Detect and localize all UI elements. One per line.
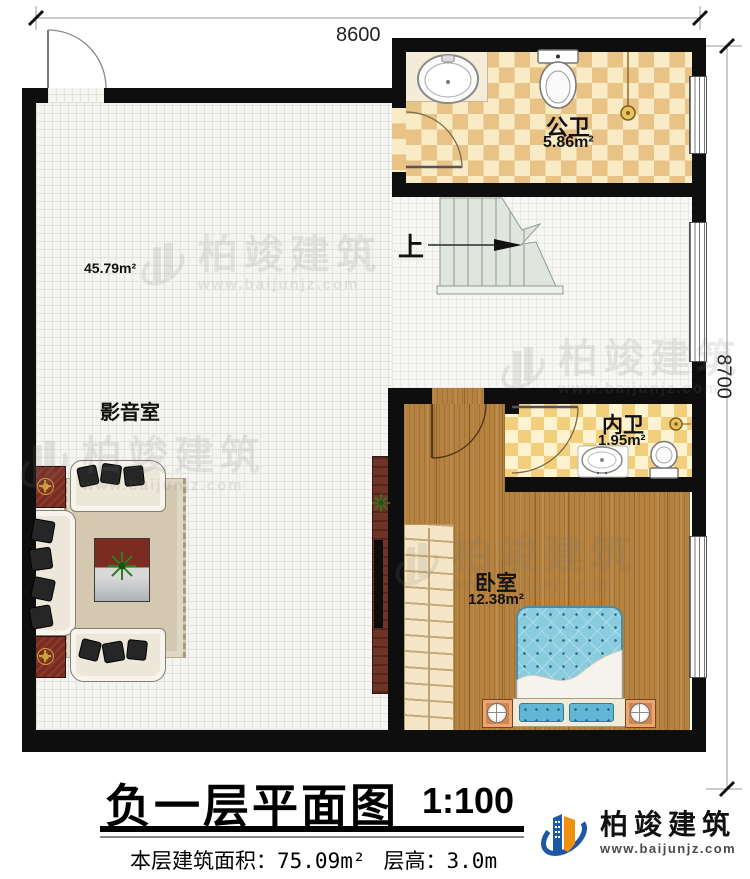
wall bbox=[392, 38, 706, 52]
watermark-logo-icon bbox=[138, 235, 188, 293]
watermark-name: 柏竣建筑 bbox=[82, 435, 266, 477]
title-rule-thick bbox=[100, 826, 524, 832]
bed-pillow bbox=[569, 703, 614, 722]
watermark-logo-icon bbox=[392, 535, 442, 593]
bed bbox=[516, 606, 623, 702]
watermark: 柏竣建筑 www.baijunjz.com bbox=[138, 234, 382, 293]
title-rule-thin bbox=[100, 836, 524, 838]
watermark: 柏竣建筑 www.baijunjz.com bbox=[16, 432, 266, 496]
entry-threshold-floor bbox=[48, 88, 104, 103]
floor-height-label: 层高： bbox=[384, 850, 447, 873]
window bbox=[689, 536, 707, 678]
brand-url: www.baijunjz.com bbox=[600, 841, 736, 856]
fan-ornament-icon bbox=[37, 648, 54, 665]
floor-height-value: 3.0m bbox=[447, 849, 498, 873]
wall bbox=[22, 730, 706, 752]
watermark-logo-icon bbox=[16, 432, 72, 496]
dimension-right bbox=[706, 39, 742, 796]
watermark-name: 柏竣建筑 bbox=[452, 534, 636, 576]
floor-area-value: 75.09m² bbox=[277, 849, 366, 873]
watermark-logo-icon bbox=[498, 339, 548, 397]
wall bbox=[104, 88, 406, 103]
room-area-inner-bath: 1.95m² bbox=[598, 432, 646, 449]
public-bath-door-threshold bbox=[392, 108, 406, 172]
watermark-url: www.baijunjz.com bbox=[452, 576, 636, 593]
bedroom-door-threshold bbox=[432, 388, 484, 404]
sofa-pillow bbox=[30, 518, 55, 543]
wall bbox=[392, 183, 706, 197]
sofa-pillow bbox=[30, 576, 56, 602]
room-area-public-bath: 5.86m² bbox=[543, 134, 594, 152]
sofa-pillow bbox=[126, 639, 148, 661]
stairs-up-label: 上 bbox=[398, 227, 424, 264]
room-area-bedroom: 12.38m² bbox=[468, 591, 524, 608]
wall bbox=[505, 477, 692, 492]
watermark-url: www.baijunjz.com bbox=[198, 276, 382, 293]
floor-plan: 8600 8700 公卫 5.86m² 影音室 45.79m² 内卫 1.95m… bbox=[0, 0, 750, 879]
lamp-icon bbox=[487, 703, 507, 723]
watermark: 柏竣建筑 www.baijunjz.com bbox=[498, 338, 742, 397]
floor-area-label: 本层建筑面积： bbox=[130, 850, 277, 873]
watermark-url: www.baijunjz.com bbox=[558, 380, 742, 397]
watermark-name: 柏竣建筑 bbox=[558, 338, 742, 380]
room-area-media-room: 45.79m² bbox=[84, 260, 136, 276]
sofa-pillow bbox=[29, 547, 54, 572]
sofa-pillow bbox=[28, 604, 53, 629]
wall bbox=[22, 88, 36, 752]
entry-door bbox=[48, 30, 106, 88]
brand-logo-icon bbox=[538, 804, 590, 862]
floor-info: 本层建筑面积：75.09m²层高：3.0m bbox=[130, 845, 497, 875]
brand-name: 柏竣建筑 bbox=[600, 810, 736, 841]
tv bbox=[374, 540, 383, 628]
lamp-icon bbox=[630, 703, 650, 723]
wall bbox=[388, 388, 432, 404]
watermark-url: www.baijunjz.com bbox=[82, 477, 266, 494]
watermark-name: 柏竣建筑 bbox=[198, 234, 382, 276]
room-label-media-room: 影音室 bbox=[100, 396, 160, 425]
watermark: 柏竣建筑 www.baijunjz.com bbox=[392, 534, 636, 593]
brand-block: 柏竣建筑 www.baijunjz.com bbox=[538, 804, 736, 862]
window bbox=[689, 76, 707, 154]
coffee-table bbox=[94, 538, 150, 602]
scale-label: 1:100 bbox=[422, 780, 514, 822]
bath-counter bbox=[406, 52, 488, 102]
dimension-top-label: 8600 bbox=[336, 24, 381, 47]
bed-pillow bbox=[519, 703, 564, 722]
wall bbox=[392, 38, 406, 108]
sofa-pillow bbox=[101, 640, 125, 663]
wall bbox=[505, 404, 519, 414]
